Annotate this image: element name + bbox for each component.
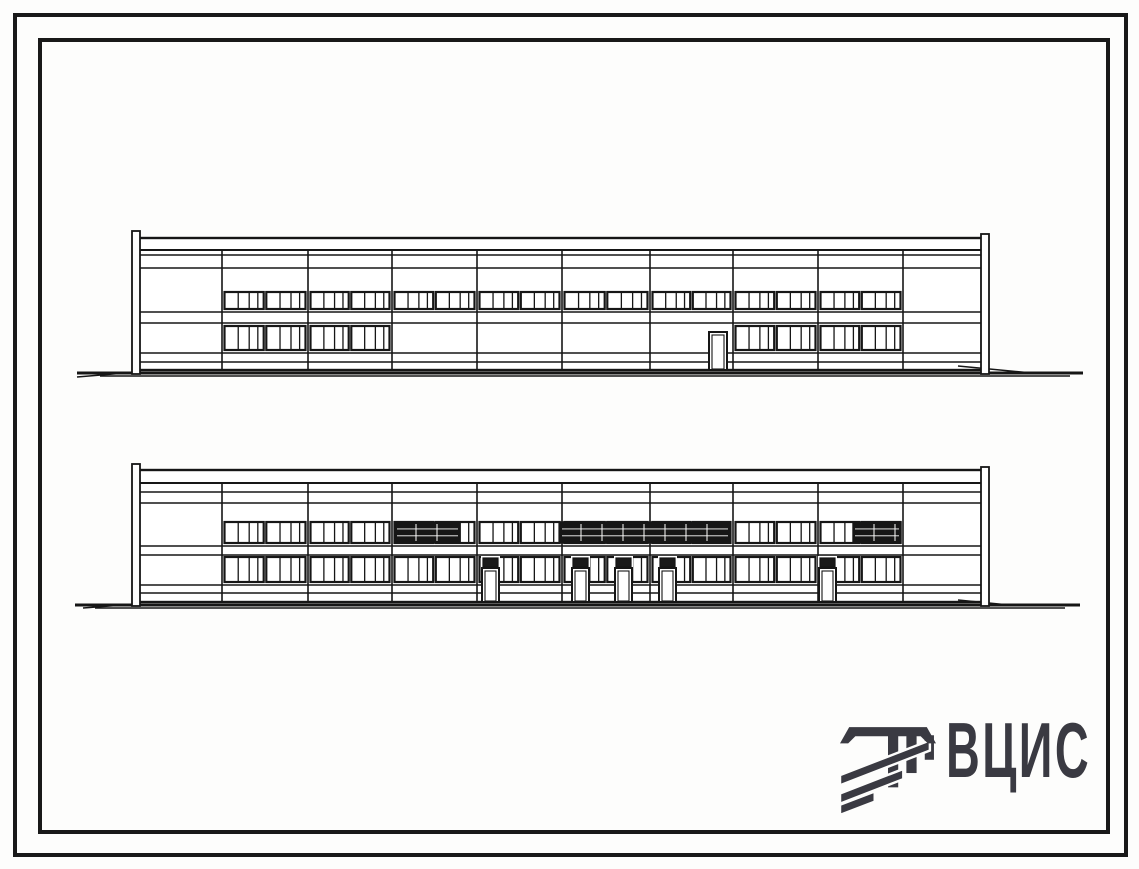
top-elevation-drawing — [75, 228, 1087, 384]
vcis-logo: ВЦИС — [840, 712, 1139, 815]
bottom-elevation-drawing — [75, 462, 1087, 614]
vcis-emblem-icon — [840, 727, 936, 815]
drawing-sheet: ВЦИС — [0, 0, 1139, 869]
vcis-logo-text: ВЦИС — [946, 712, 1091, 788]
